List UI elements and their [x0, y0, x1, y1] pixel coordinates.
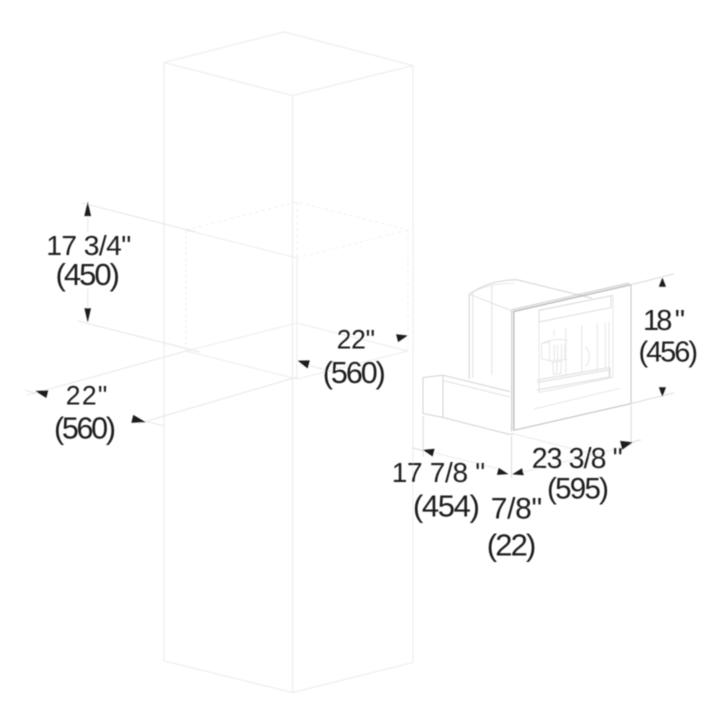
- svg-text:(22): (22): [487, 528, 537, 563]
- svg-text:(450): (450): [56, 257, 121, 292]
- svg-text:(560): (560): [54, 412, 116, 446]
- svg-text:22": 22": [337, 325, 376, 355]
- svg-text:23 3/8 ": 23 3/8 ": [532, 443, 623, 475]
- svg-text:22": 22": [66, 380, 108, 410]
- svg-text:(456): (456): [639, 337, 699, 369]
- svg-text:7/8": 7/8": [491, 493, 543, 526]
- svg-text:17 7/8 ": 17 7/8 ": [392, 457, 486, 488]
- svg-text:(454): (454): [413, 489, 480, 524]
- svg-text:(560): (560): [323, 356, 386, 390]
- svg-text:(595): (595): [547, 472, 609, 505]
- svg-text:18 ": 18 ": [643, 305, 685, 337]
- svg-text:17 3/4": 17 3/4": [46, 229, 131, 261]
